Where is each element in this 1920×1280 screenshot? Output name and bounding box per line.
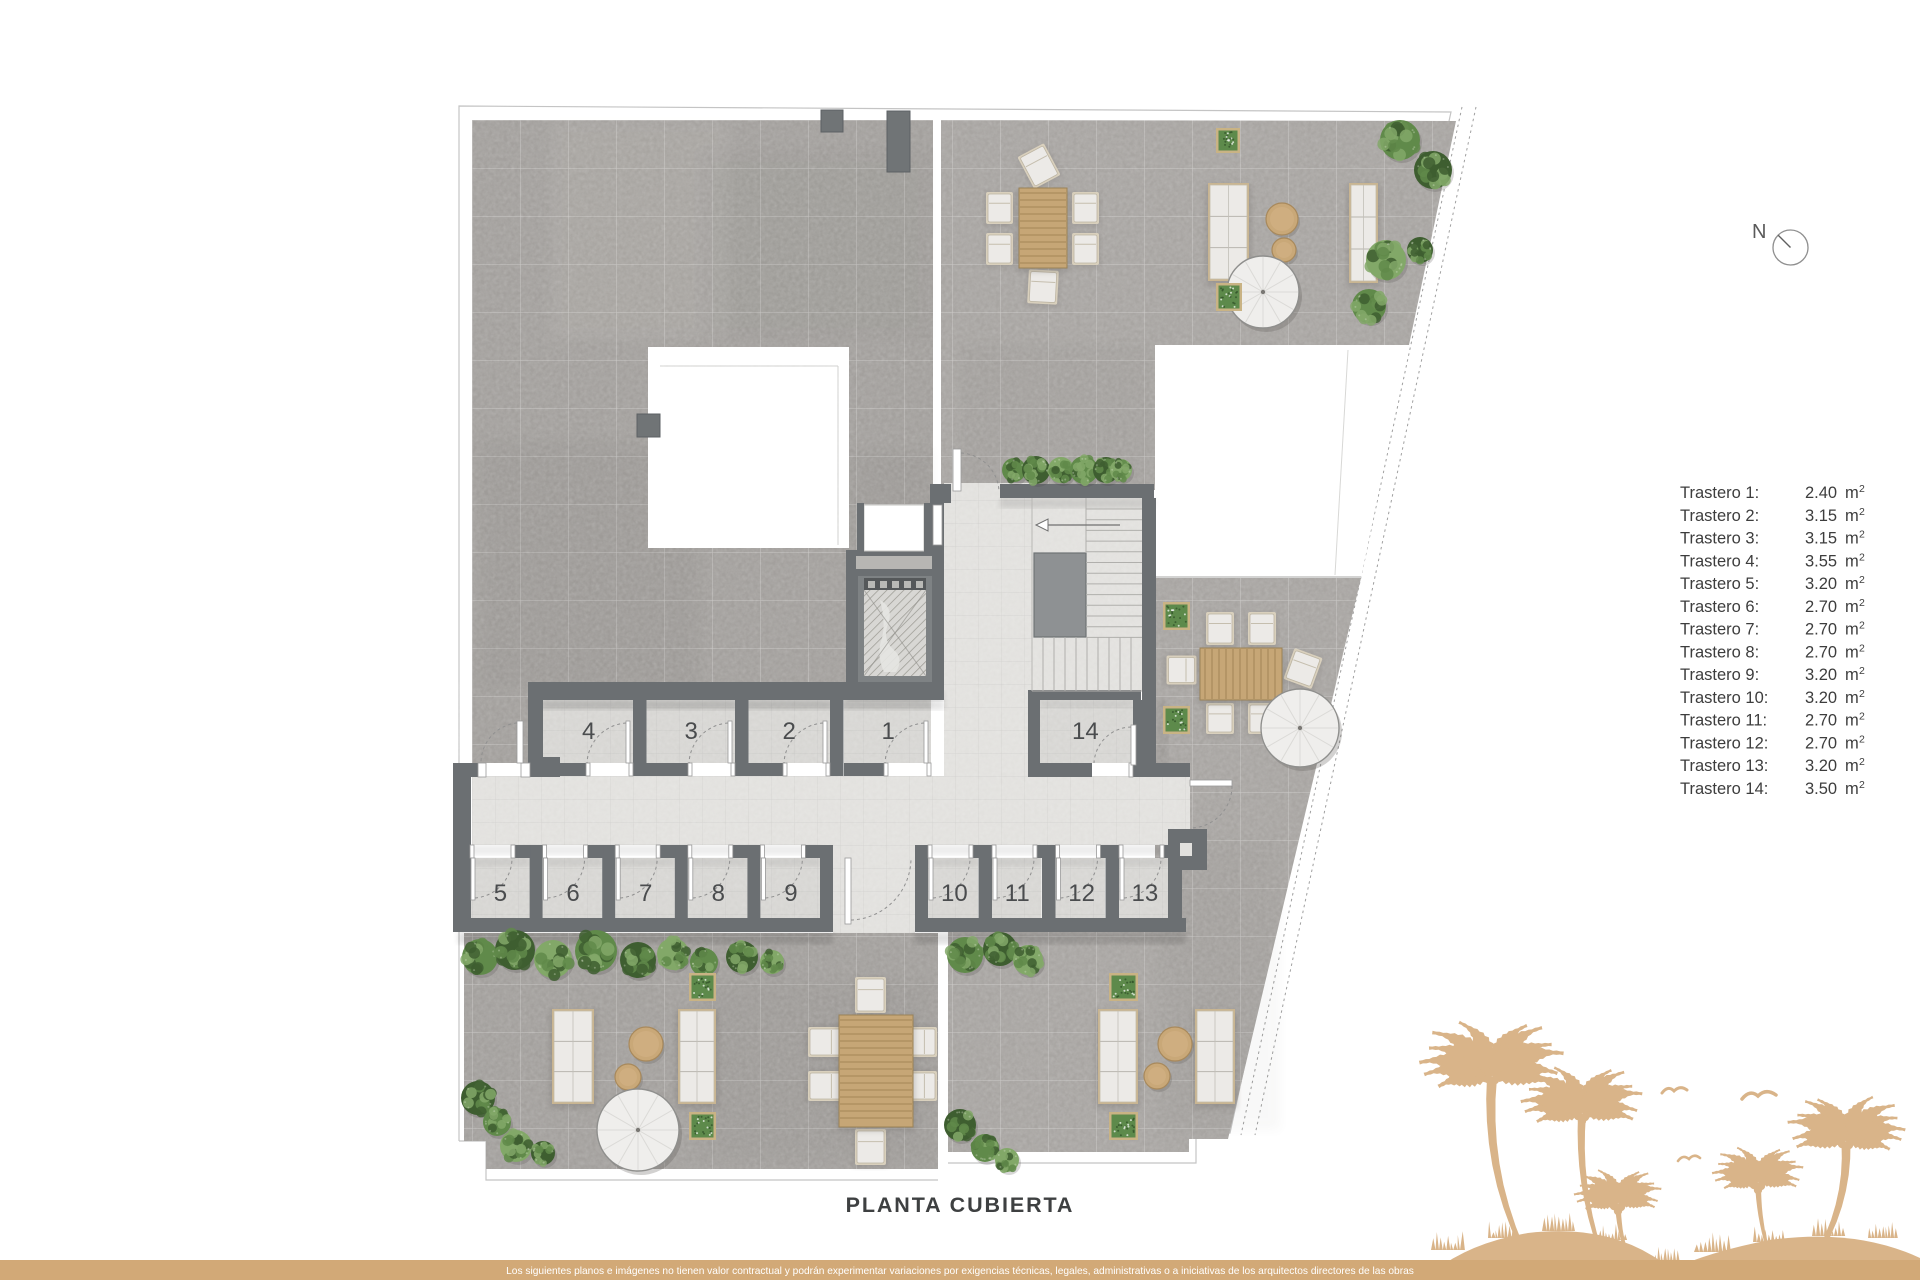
svg-text:6: 6 [566, 880, 579, 907]
svg-text:m: m [1845, 780, 1859, 798]
svg-text:2: 2 [1859, 642, 1865, 654]
svg-text:m: m [1845, 757, 1859, 775]
svg-text:1: 1 [882, 718, 895, 745]
svg-text:Los siguientes planos e imágen: Los siguientes planos e imágenes no tien… [506, 1266, 1414, 1277]
svg-text:m: m [1845, 575, 1859, 593]
svg-text:7: 7 [639, 880, 652, 907]
svg-text:8: 8 [712, 880, 725, 907]
svg-text:14: 14 [1072, 718, 1099, 745]
svg-text:2: 2 [1859, 574, 1865, 586]
svg-text:3.15: 3.15 [1805, 530, 1837, 548]
svg-text:13: 13 [1132, 880, 1159, 907]
svg-text:2.70: 2.70 [1805, 621, 1837, 639]
svg-text:2: 2 [783, 718, 796, 745]
svg-text:3: 3 [685, 718, 698, 745]
svg-text:3.20: 3.20 [1805, 575, 1837, 593]
svg-text:m: m [1845, 712, 1859, 730]
svg-text:Trastero 6:: Trastero 6: [1680, 598, 1759, 616]
svg-text:m: m [1845, 552, 1859, 570]
svg-text:2: 2 [1859, 506, 1865, 518]
svg-text:2: 2 [1859, 688, 1865, 700]
svg-text:3.20: 3.20 [1805, 689, 1837, 707]
svg-text:2: 2 [1859, 483, 1865, 495]
svg-text:2: 2 [1859, 620, 1865, 632]
svg-text:2.70: 2.70 [1805, 734, 1837, 752]
svg-text:2: 2 [1859, 665, 1865, 677]
svg-text:12: 12 [1068, 880, 1095, 907]
svg-text:m: m [1845, 530, 1859, 548]
svg-text:5: 5 [494, 880, 507, 907]
svg-text:N: N [1752, 221, 1766, 243]
svg-text:2: 2 [1859, 756, 1865, 768]
svg-text:2.70: 2.70 [1805, 643, 1837, 661]
svg-text:3.50: 3.50 [1805, 780, 1837, 798]
svg-text:2: 2 [1859, 779, 1865, 791]
svg-text:10: 10 [941, 880, 968, 907]
svg-text:Trastero 5:: Trastero 5: [1680, 575, 1759, 593]
svg-text:m: m [1845, 484, 1859, 502]
svg-text:Trastero 11:: Trastero 11: [1680, 712, 1767, 730]
svg-text:m: m [1845, 734, 1859, 752]
svg-text:2: 2 [1859, 711, 1865, 723]
svg-text:m: m [1845, 598, 1859, 616]
svg-text:2.40: 2.40 [1805, 484, 1837, 502]
svg-text:Trastero 8:: Trastero 8: [1680, 643, 1759, 661]
svg-text:Trastero 3:: Trastero 3: [1680, 530, 1759, 548]
svg-text:3.20: 3.20 [1805, 666, 1837, 684]
svg-text:PLANTA CUBIERTA: PLANTA CUBIERTA [846, 1193, 1075, 1217]
svg-text:3.20: 3.20 [1805, 757, 1837, 775]
svg-text:2.70: 2.70 [1805, 712, 1837, 730]
svg-text:3.55: 3.55 [1805, 552, 1837, 570]
svg-text:m: m [1845, 621, 1859, 639]
svg-text:2: 2 [1859, 551, 1865, 563]
svg-text:11: 11 [1005, 880, 1030, 907]
svg-text:m: m [1845, 666, 1859, 684]
svg-text:Trastero 13:: Trastero 13: [1680, 757, 1768, 775]
svg-text:2: 2 [1859, 733, 1865, 745]
svg-text:m: m [1845, 689, 1859, 707]
svg-text:3.15: 3.15 [1805, 507, 1837, 525]
svg-text:2: 2 [1859, 597, 1865, 609]
svg-text:Trastero 7:: Trastero 7: [1680, 621, 1759, 639]
svg-text:Trastero 9:: Trastero 9: [1680, 666, 1759, 684]
svg-text:Trastero 10:: Trastero 10: [1680, 689, 1768, 707]
svg-text:4: 4 [582, 718, 595, 745]
svg-text:m: m [1845, 507, 1859, 525]
svg-text:Trastero 4:: Trastero 4: [1680, 552, 1759, 570]
svg-text:2: 2 [1859, 529, 1865, 541]
svg-text:Trastero 1:: Trastero 1: [1680, 484, 1759, 502]
svg-text:m: m [1845, 643, 1859, 661]
svg-text:Trastero 2:: Trastero 2: [1680, 507, 1759, 525]
svg-text:2.70: 2.70 [1805, 598, 1837, 616]
svg-text:Trastero 14:: Trastero 14: [1680, 780, 1768, 798]
svg-text:Trastero 12:: Trastero 12: [1680, 734, 1768, 752]
svg-text:9: 9 [784, 880, 797, 907]
